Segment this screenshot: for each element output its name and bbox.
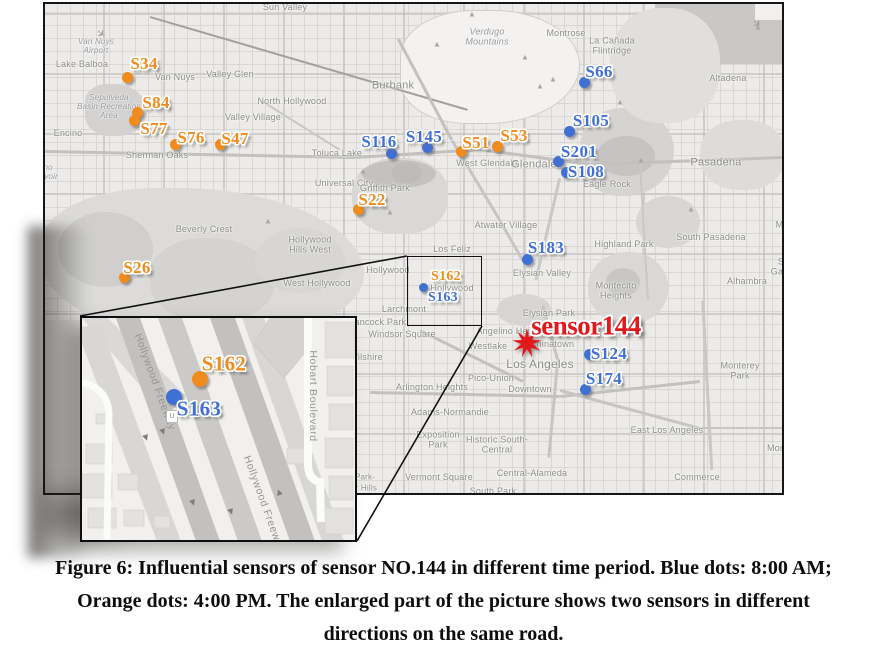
peak-icon: ▲ (637, 156, 645, 165)
peak-icon: ▲ (549, 75, 557, 84)
road-line (700, 427, 783, 430)
sensor-label: S53 (500, 126, 527, 146)
sensor-label: S26 (123, 258, 150, 278)
sensor-dot (419, 283, 428, 292)
target-sensor-label: sensor144 (531, 311, 641, 342)
place-label: Encino Reservoir (43, 163, 58, 181)
place-label: Commerce (674, 472, 720, 482)
terrain-patch (606, 268, 640, 296)
terrain-patch (392, 162, 422, 184)
sensor-label: S124 (591, 344, 627, 364)
terrain-patch (597, 136, 655, 176)
sensor-dot (129, 115, 140, 126)
place-label: Arlington Heights (396, 382, 468, 392)
sensor-label: S162 (431, 269, 461, 285)
road-line (702, 300, 713, 470)
place-label: Montebello (767, 443, 784, 453)
sensor-label: S108 (568, 162, 604, 182)
sensor-label: S201 (561, 142, 597, 162)
peak-icon: ▲ (386, 208, 394, 217)
figure-6-page: sensor144 Sun ValleyLake BalboaVan Nuys … (0, 0, 887, 649)
place-label: Lake Balboa (56, 59, 108, 69)
place-label: Historic South- Central (466, 435, 528, 456)
sensor-label: S22 (358, 190, 385, 210)
place-label: Monterey Park (719, 361, 761, 382)
place-label: Sun Valley (263, 2, 307, 12)
enlarged-inset-map: Hollywood Freeway Hollywood Freeway Hoba… (80, 316, 357, 542)
sensor-label: S145 (406, 127, 442, 147)
peak-icon: ▲ (687, 205, 695, 214)
sensor-label: S163 (177, 397, 221, 422)
place-label: Westlake (469, 341, 507, 351)
place-label: Valley Village (225, 112, 281, 122)
place-label: Encino (54, 128, 83, 138)
place-label: Van Nuys (155, 72, 195, 82)
sensor-label: S76 (177, 128, 204, 148)
place-label: Central-Alameda (497, 468, 568, 478)
sensor-label: S105 (573, 111, 609, 131)
road-line (548, 360, 559, 458)
figure-caption: Figure 6: Influential sensors of sensor … (0, 552, 887, 649)
road-line (419, 329, 523, 383)
road-line (45, 150, 356, 159)
place-label: Van Nuys Airport (78, 37, 114, 55)
sensor-label: S51 (462, 133, 489, 153)
sensor-label: S84 (142, 93, 169, 113)
peak-icon: ▲ (521, 53, 529, 62)
sensor-label: S47 (221, 129, 248, 149)
peak-icon: ▲ (433, 40, 441, 49)
sensor-label: S163 (428, 290, 458, 306)
peak-icon: ▲ (359, 167, 367, 176)
place-label: South Park (470, 486, 517, 495)
caption-line: Figure 6: Influential sensors of sensor … (0, 552, 887, 585)
peak-icon: ▲ (536, 82, 544, 91)
road-line (535, 178, 561, 281)
place-label: Park- (355, 472, 375, 481)
place-label: Valley Glen (206, 69, 254, 79)
road-line (560, 389, 701, 429)
sensor-label: S77 (140, 119, 167, 139)
place-label: San Gabriel (771, 257, 784, 278)
sensor-label: S116 (361, 132, 396, 152)
place-label: Exposition Park (416, 430, 460, 451)
terrain-patch (255, 228, 345, 293)
sensor-label: S66 (585, 62, 612, 82)
terrain-patch (400, 10, 580, 124)
airport-icon: ✈ (93, 26, 108, 42)
terrain-patch (700, 120, 784, 190)
peak-icon: ▲ (264, 217, 272, 226)
caption-line: Orange dots: 4:00 PM. The enlarged part … (0, 585, 887, 618)
sensor-label: S162 (202, 352, 246, 377)
caption-line: directions on the same road. (0, 618, 887, 649)
place-label: Hollywood (366, 265, 409, 275)
peak-icon: ▲ (468, 10, 476, 19)
place-label: Adams-Normandie (411, 407, 489, 417)
terrain-patch (610, 8, 720, 123)
place-label: San Marino (776, 210, 784, 231)
place-label: Vermont Square (405, 472, 473, 482)
sensor-label: S183 (528, 238, 564, 258)
road-line (370, 391, 560, 398)
place-label: Alhambra (727, 276, 767, 286)
road-line (499, 219, 525, 262)
place-label: Downtown (508, 384, 552, 394)
place-label: Los Feliz (433, 244, 471, 254)
peak-icon: ▲ (616, 98, 624, 107)
place-label: Elysian Valley (513, 268, 571, 278)
sensor-label: S34 (130, 54, 157, 74)
road-line (259, 99, 340, 151)
sensor-label: S174 (586, 369, 622, 389)
